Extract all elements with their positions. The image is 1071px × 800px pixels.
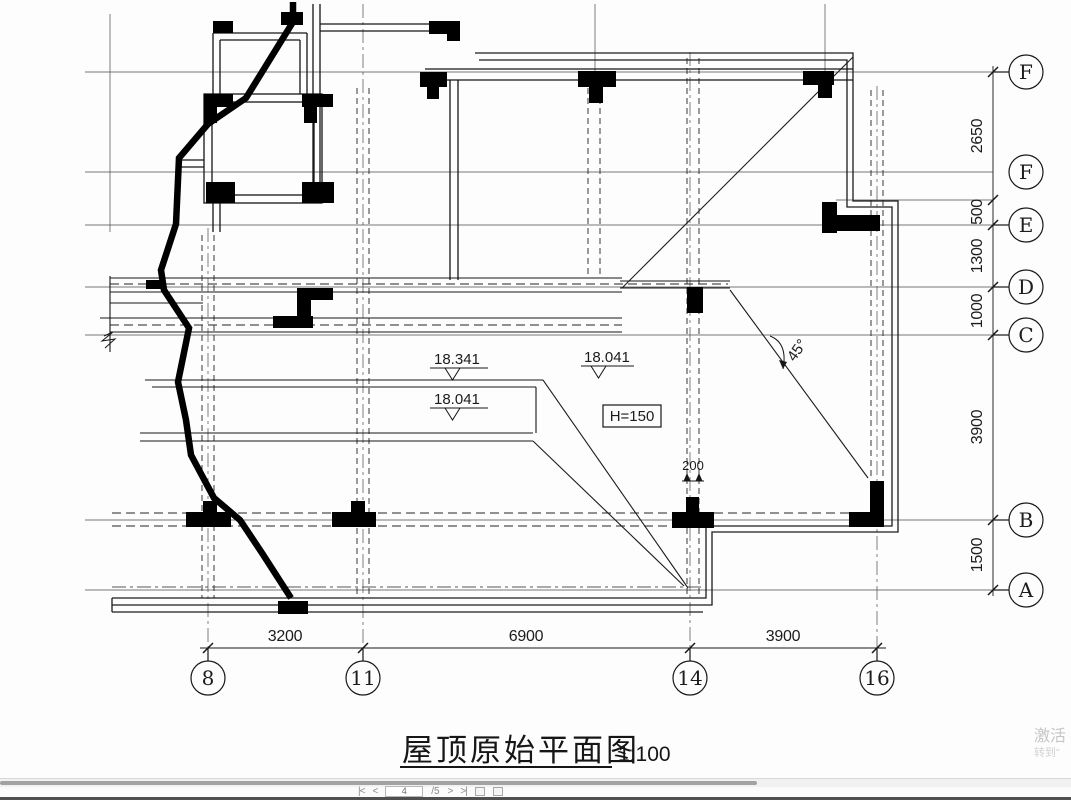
break-line: [161, 2, 293, 598]
dim-bottom-3: 3900: [766, 628, 801, 645]
watermark-line2: 转到“: [1034, 746, 1066, 760]
dim-right-1: 2650: [969, 118, 986, 153]
row-bubble-label: F: [1019, 60, 1033, 84]
gap-dimension: 200: [682, 458, 704, 481]
watermark-line1: 激活: [1034, 727, 1066, 746]
dim-right-4: 1000: [969, 293, 986, 328]
grid-bubbles-bottom: 8 11 14 16: [191, 648, 894, 695]
angle-value: 45°: [784, 336, 811, 364]
corridor-walls: [100, 276, 730, 352]
dimension-bottom: 3200 6900 3900: [200, 628, 886, 653]
dim-right-6: 1500: [969, 537, 986, 572]
drawing-title: 屋顶原始平面图: [402, 733, 640, 768]
elevation-value: 18.341: [434, 351, 480, 368]
roof-panel: [140, 380, 543, 441]
col-bubble-label: 16: [864, 666, 889, 690]
row-bubble-label: D: [1018, 275, 1034, 299]
roof-plan-svg: 18.341 18.041 18.041 H=150 45° 200: [0, 0, 1071, 778]
height-value: H=150: [610, 408, 655, 425]
drawing-scale: 1:100: [618, 743, 671, 766]
activation-watermark: 激活 转到“: [1034, 727, 1066, 760]
row-bubble-label: B: [1019, 508, 1034, 532]
row-bubble-label: A: [1018, 578, 1034, 602]
elevation-value: 18.041: [584, 349, 630, 366]
row-bubble-label: F: [1019, 160, 1033, 184]
grid-bubbles-right: F F E D C B A: [993, 55, 1043, 607]
elevation-value: 18.041: [434, 391, 480, 408]
fit-page-icon[interactable]: [493, 787, 503, 796]
horizontal-scrollbar[interactable]: [0, 778, 1071, 787]
elevation-marker-top: 18.341: [430, 351, 488, 380]
col-bubble-label: 11: [350, 666, 375, 690]
col-bubble-label: 14: [677, 666, 702, 690]
row-bubble-label: E: [1019, 213, 1034, 237]
elevation-marker-right: 18.041: [581, 349, 634, 378]
dim-right-5: 3900: [969, 409, 986, 444]
dim-bottom-1: 3200: [268, 628, 303, 645]
dim-right-3: 1300: [969, 238, 986, 273]
dim-right-2: 500: [969, 199, 986, 225]
col-bubble-label: 8: [202, 666, 215, 690]
drawing-title-block: 屋顶原始平面图 1:100: [400, 733, 671, 768]
drawing-canvas[interactable]: 18.341 18.041 18.041 H=150 45° 200: [0, 0, 1071, 778]
page-number-input[interactable]: 4: [385, 786, 423, 797]
dimension-right: 2650 500 1300 1000 3900 1500: [969, 66, 998, 596]
hip-lines: [533, 57, 868, 588]
pager-toolbar: |< < 4 /5 > >|: [0, 787, 1071, 797]
height-label: H=150: [603, 405, 661, 427]
elevation-marker-panel: 18.041: [430, 391, 488, 420]
dim-bottom-2: 6900: [509, 628, 544, 645]
gap-value: 200: [682, 458, 704, 473]
single-page-icon[interactable]: [475, 787, 485, 796]
row-bubble-label: C: [1018, 323, 1033, 347]
